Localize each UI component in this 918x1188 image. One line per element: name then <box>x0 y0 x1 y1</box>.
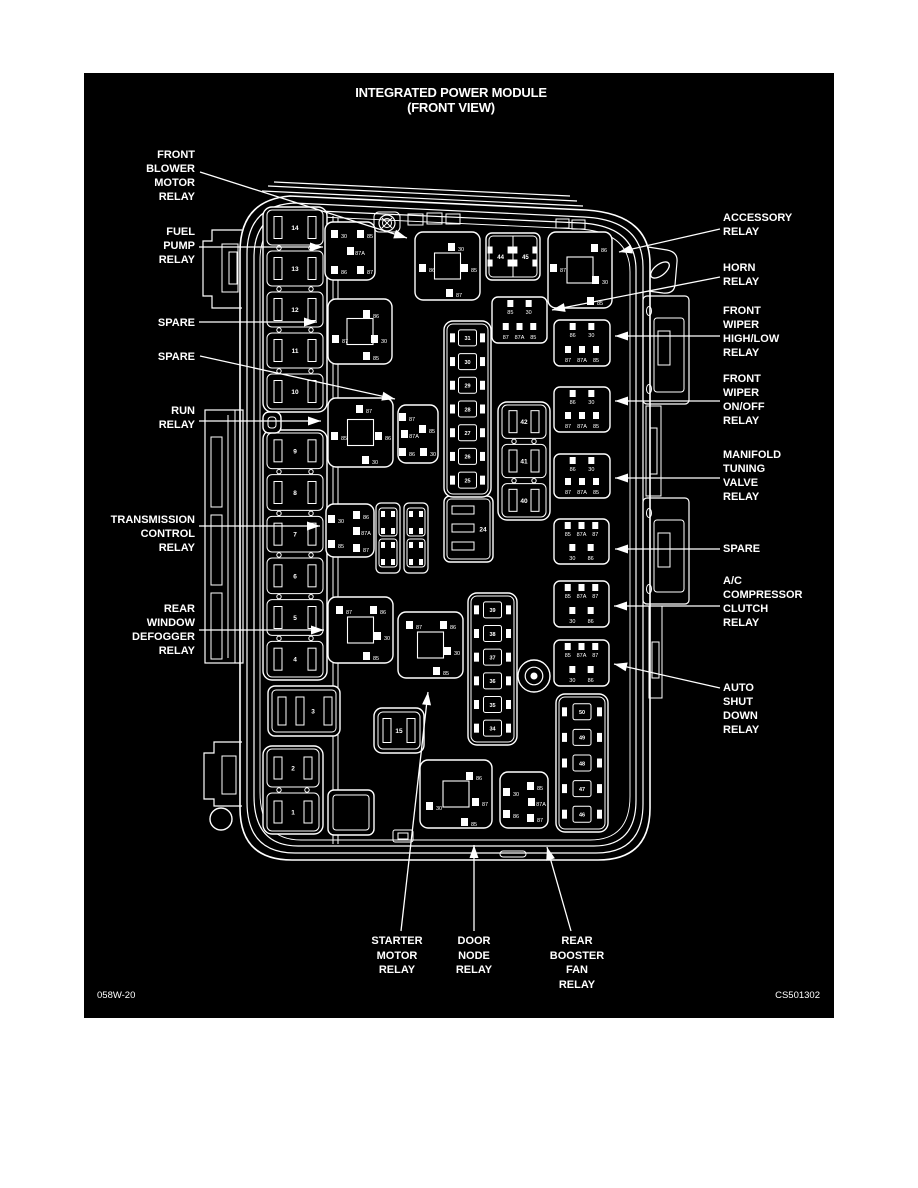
pin-label: 85 <box>597 301 603 307</box>
pin-label: 87A <box>577 424 587 430</box>
pin-stub <box>588 544 594 551</box>
pin-stub <box>461 264 468 272</box>
fuse-number: 9 <box>293 448 297 455</box>
pin-stub <box>569 544 575 551</box>
pin-stub <box>474 605 479 614</box>
pin-stub <box>488 247 493 254</box>
spare-right-label: SPARE <box>723 543 760 555</box>
pin-stub <box>562 759 567 768</box>
pin-label: 85 <box>565 594 571 600</box>
pin-stub <box>353 544 360 552</box>
pin-stub <box>401 430 408 438</box>
callout-text: TUNING <box>723 463 765 475</box>
pin-stub <box>381 542 385 548</box>
pin-stub <box>532 247 537 254</box>
pin-stub <box>588 666 594 673</box>
spare-2-label: SPARE <box>158 351 195 363</box>
fuse-number: 26 <box>464 455 470 461</box>
pin-stub <box>363 352 370 360</box>
spare-1-label: SPARE <box>158 317 195 329</box>
callout-text: COMPRESSOR <box>723 589 803 601</box>
pin-label: 30 <box>384 636 390 642</box>
pin-label: 87 <box>456 293 462 299</box>
pin-label: 87A <box>515 335 525 341</box>
pin-label: 87 <box>592 532 598 538</box>
pin-label: 30 <box>588 333 594 339</box>
pin-stub <box>579 346 585 353</box>
pin-stub <box>588 457 594 464</box>
pin-label: 87A <box>577 532 587 538</box>
figure-code-left: 058W-20 <box>97 990 135 1001</box>
pin-stub <box>562 810 567 819</box>
pin-stub <box>592 276 599 284</box>
pin-stub <box>591 244 598 252</box>
pin-stub <box>391 511 395 517</box>
manifold-relay-group: 86308787A85 <box>554 454 610 498</box>
blank-box-group <box>328 790 374 835</box>
ac-clutch-relay-group: 8587A873086 <box>554 581 609 627</box>
pin-stub <box>450 333 455 342</box>
diagram-subtitle: (FRONT VIEW) <box>407 100 495 115</box>
fuse-number: 4 <box>293 657 297 664</box>
pin-stub <box>450 357 455 366</box>
pin-stub <box>419 542 423 548</box>
pin-label: 30 <box>341 234 347 240</box>
minifuse-column-right-group: 5049484746 <box>556 694 608 832</box>
callout-text: FRONT <box>157 149 195 161</box>
callout-text: BOOSTER <box>550 950 604 962</box>
pin-stub <box>399 413 406 421</box>
callout-text: FUEL <box>166 226 195 238</box>
fuse-number: 34 <box>489 726 496 732</box>
minifuse-strip-2 <box>404 503 428 573</box>
callout-text: ACCESSORY <box>723 212 793 224</box>
pin-label: 30 <box>569 619 575 625</box>
pin-stub <box>419 264 426 272</box>
pin-stub <box>488 260 493 267</box>
pin-label: 30 <box>526 310 532 316</box>
pin-stub <box>446 289 453 297</box>
pin-label: 85 <box>530 335 536 341</box>
callout-text: WINDOW <box>147 617 196 629</box>
pin-stub <box>450 381 455 390</box>
pin-stub <box>506 724 511 733</box>
callout-text: DEFOGGER <box>132 631 195 643</box>
pin-stub <box>565 412 571 419</box>
pin-label: 85 <box>507 310 513 316</box>
pin-label: 85 <box>471 268 477 274</box>
fuse-number: 25 <box>464 478 470 484</box>
run-feed-box <box>263 412 281 433</box>
pin-label: 87A <box>409 434 419 440</box>
callout-text: RELAY <box>723 226 760 238</box>
fuse-column-42-group: 424140 <box>498 402 550 520</box>
pin-label: 86 <box>363 515 369 521</box>
pin-stub <box>391 528 395 534</box>
pin-label: 87A <box>577 490 587 496</box>
pin-label: 86 <box>385 436 391 442</box>
callout-text: MOTOR <box>377 950 418 962</box>
pin-stub <box>528 798 535 806</box>
callout-text: FRONT <box>723 373 761 385</box>
pin-stub <box>480 428 485 437</box>
fuse-number: 2 <box>291 766 295 773</box>
pin-label: 87 <box>503 335 509 341</box>
pin-label: 30 <box>454 651 460 657</box>
pin-stub <box>562 784 567 793</box>
callout-text: HIGH/LOW <box>723 333 780 345</box>
pin-stub <box>381 528 385 534</box>
pin-stub <box>472 798 479 806</box>
pin-label: 85 <box>593 490 599 496</box>
pin-stub <box>353 511 360 519</box>
fuse-number: 24 <box>479 527 487 534</box>
pin-stub <box>328 515 335 523</box>
callout-text: FRONT <box>723 305 761 317</box>
booster-relay-group: 30868587A87 <box>500 772 548 828</box>
pin-label: 86 <box>588 678 594 684</box>
pin-stub <box>474 676 479 685</box>
callout-text: RELAY <box>159 542 196 554</box>
fuse-number: 7 <box>293 532 297 539</box>
pin-label: 86 <box>588 556 594 562</box>
starter-motor-relay-label: STARTERMOTORRELAY <box>371 935 422 976</box>
stud-group <box>518 660 550 692</box>
pin-stub <box>593 412 599 419</box>
pin-stub <box>391 542 395 548</box>
pin-label: 87A <box>355 251 365 257</box>
callout-text: NODE <box>458 950 490 962</box>
pin-stub <box>450 452 455 461</box>
spare-relay-1 <box>328 299 392 364</box>
horn-relay-group: 85308787A85 <box>492 297 547 343</box>
spare-relay-2-group: 878587A8630 <box>398 405 438 463</box>
pin-stub <box>332 335 339 343</box>
callout-text: PUMP <box>163 240 195 252</box>
callout-text: SHUT <box>723 696 753 708</box>
pin-stub <box>370 606 377 614</box>
pin-stub <box>565 584 571 591</box>
fuse-column-mid-group: 987654 <box>263 430 327 680</box>
pin-label: 87 <box>342 339 348 345</box>
pin-stub <box>440 621 447 629</box>
callout-text: VALVE <box>723 477 758 489</box>
pin-label: 86 <box>373 314 379 320</box>
pin-label: 85 <box>537 786 543 792</box>
callout-text: FAN <box>566 964 588 976</box>
pin-stub <box>419 511 423 517</box>
pin-stub <box>530 323 536 330</box>
pin-label: 30 <box>569 556 575 562</box>
pin-stub <box>597 733 602 742</box>
pin-stub <box>508 260 513 267</box>
pin-label: 87 <box>592 594 598 600</box>
pin-stub <box>419 528 423 534</box>
fuse-44-45-group: 4445 <box>486 233 540 280</box>
fuse-number: 5 <box>293 615 297 622</box>
pin-label: 85 <box>593 424 599 430</box>
pin-label: 87 <box>363 548 369 554</box>
pin-stub <box>587 297 594 305</box>
pin-label: 30 <box>588 467 594 473</box>
pin-stub <box>461 818 468 826</box>
pin-stub <box>517 323 523 330</box>
pin-stub <box>480 452 485 461</box>
asd-relay-group: 8587A873086 <box>554 640 609 686</box>
pin-stub <box>399 448 406 456</box>
callout-text: CLUTCH <box>723 603 768 615</box>
pin-label: 30 <box>372 460 378 466</box>
fuse-number: 29 <box>464 384 470 390</box>
figure-code-right: CS501302 <box>775 990 820 1001</box>
fuse-number: 38 <box>489 632 495 638</box>
pin-stub <box>593 478 599 485</box>
callout-text: AUTO <box>723 682 754 694</box>
pin-label: 86 <box>429 268 435 274</box>
pin-stub <box>593 346 599 353</box>
minifuse-column-center <box>468 593 517 745</box>
callout-text: WIPER <box>723 387 759 399</box>
pin-label: 87 <box>346 610 352 616</box>
pin-stub <box>588 390 594 397</box>
pin-stub <box>433 667 440 675</box>
diagram-title: INTEGRATED POWER MODULE <box>355 85 547 100</box>
pin-stub <box>507 300 513 307</box>
pin-label: 86 <box>513 814 519 820</box>
pin-stub <box>565 522 571 529</box>
callout-text: A/C <box>723 575 742 587</box>
pin-label: 87A <box>361 531 371 537</box>
pin-label: 85 <box>565 653 571 659</box>
minifuse-strip-1 <box>376 503 400 573</box>
pin-label: 87 <box>565 424 571 430</box>
callout-text: RELAY <box>723 276 760 288</box>
pin-stub <box>565 478 571 485</box>
pin-stub <box>363 652 370 660</box>
pin-stub <box>328 540 335 548</box>
pin-stub <box>474 724 479 733</box>
stud-center <box>530 672 537 679</box>
pin-stub <box>597 759 602 768</box>
pin-stub <box>480 333 485 342</box>
pin-stub <box>347 247 354 255</box>
wiper-highlow-relay-group: 86308787A85 <box>554 320 610 366</box>
fuse-number: 11 <box>292 348 299 355</box>
minifuse-strip-1-group <box>376 503 400 573</box>
pin-label: 85 <box>593 358 599 364</box>
minifuse-column-upper-group: 31302928272625 <box>444 321 491 497</box>
pin-stub <box>480 476 485 485</box>
pin-stub <box>550 264 557 272</box>
pin-stub <box>597 784 602 793</box>
pin-stub <box>356 405 363 413</box>
run-relay-group: 87858630 <box>328 398 393 467</box>
pin-stub <box>570 457 576 464</box>
callout-text: CONTROL <box>141 528 196 540</box>
pin-stub <box>565 643 571 650</box>
pin-label: 87 <box>565 490 571 496</box>
tcm-relay-group: 308687A8587 <box>326 504 374 557</box>
callout-text: RELAY <box>159 645 196 657</box>
callout-text: MANIFOLD <box>723 449 781 461</box>
callout-text: BLOWER <box>146 163 195 175</box>
pin-stub <box>375 432 382 440</box>
fuse-number: 47 <box>579 787 585 793</box>
pin-stub <box>474 629 479 638</box>
fuse-number: 10 <box>291 389 299 396</box>
pin-stub <box>474 653 479 662</box>
pin-label: 85 <box>338 544 344 550</box>
fuse-number: 39 <box>489 608 495 614</box>
pin-stub <box>562 707 567 716</box>
pin-stub <box>480 357 485 366</box>
pin-label: 85 <box>429 429 435 435</box>
pin-label: 87 <box>560 268 566 274</box>
pin-label: 30 <box>436 806 442 812</box>
pin-stub <box>420 448 427 456</box>
pin-stub <box>527 814 534 822</box>
pin-stub <box>569 666 575 673</box>
fuse-number: 14 <box>291 225 299 232</box>
pin-stub <box>391 559 395 565</box>
pin-label: 87 <box>592 653 598 659</box>
pin-stub <box>503 788 510 796</box>
fuse-number: 30 <box>464 360 470 366</box>
pin-label: 85 <box>471 822 477 828</box>
pin-stub <box>579 478 585 485</box>
callout-text: DOOR <box>458 935 491 947</box>
pin-stub <box>419 425 426 433</box>
pin-stub <box>331 432 338 440</box>
pin-stub <box>409 542 413 548</box>
pin-stub <box>527 782 534 790</box>
callout-text: RELAY <box>159 254 196 266</box>
fuse-number: 31 <box>464 336 470 342</box>
fuse-number: 27 <box>464 431 470 437</box>
callout-text: SPARE <box>158 317 195 329</box>
accessory-relay <box>548 232 612 308</box>
pin-stub <box>592 522 598 529</box>
pin-label: 87 <box>366 409 372 415</box>
fuse-number: 46 <box>579 813 585 819</box>
fuse-number: 44 <box>497 255 504 261</box>
pin-stub <box>336 606 343 614</box>
pin-stub <box>450 476 455 485</box>
page: INTEGRATED POWER MODULE (FRONT VIEW) <box>0 0 918 1188</box>
pin-stub <box>526 300 532 307</box>
fuse-15-group: 15 <box>374 708 424 753</box>
callout-text: RELAY <box>379 964 416 976</box>
pin-stub <box>381 559 385 565</box>
pin-stub <box>474 700 479 709</box>
callout-text: RELAY <box>159 419 196 431</box>
pin-label: 85 <box>373 356 379 362</box>
pin-label: 87A <box>577 653 587 659</box>
pin-stub <box>331 230 338 238</box>
pin-label: 86 <box>570 333 576 339</box>
pin-stub <box>480 405 485 414</box>
pin-label: 85 <box>367 234 373 240</box>
fuse-24-group: 24 <box>444 496 493 562</box>
pin-label: 86 <box>476 776 482 782</box>
pin-label: 87 <box>367 270 373 276</box>
pin-stub <box>512 260 517 267</box>
fuse-number: 40 <box>520 498 528 505</box>
fuse-number: 13 <box>291 266 299 273</box>
pin-label: 87A <box>577 594 587 600</box>
fuse-number: 36 <box>489 679 495 685</box>
fuse-box-3-group: 3 <box>268 686 340 736</box>
pin-stub <box>532 260 537 267</box>
fuse-number: 37 <box>489 655 495 661</box>
fuse-number: 50 <box>579 710 585 716</box>
pin-stub <box>503 810 510 818</box>
callout-text: RELAY <box>723 724 760 736</box>
callout-text: MOTOR <box>154 177 195 189</box>
pin-stub <box>562 733 567 742</box>
fuse-number: 15 <box>395 728 403 735</box>
pin-stub <box>409 511 413 517</box>
callout-text: WIPER <box>723 319 759 331</box>
pin-stub <box>588 323 594 330</box>
pin-stub <box>374 632 381 640</box>
pin-stub <box>371 335 378 343</box>
fuse-column-low <box>263 746 323 834</box>
minifuse-column-center-group: 393837363534 <box>468 593 517 745</box>
pin-label: 85 <box>443 671 449 677</box>
starter-relay-group: 87863085 <box>398 612 463 678</box>
wiper-onoff-relay-group: 86308787A85 <box>554 387 610 432</box>
fuse-column-low-group: 21 <box>263 746 323 834</box>
pin-label: 86 <box>409 452 415 458</box>
pin-stub <box>506 629 511 638</box>
fuse-number: 41 <box>520 459 528 466</box>
pin-label: 87 <box>482 802 488 808</box>
callout-text: SPARE <box>158 351 195 363</box>
pin-stub <box>569 607 575 614</box>
pin-stub <box>426 802 433 810</box>
pin-stub <box>579 522 585 529</box>
door-node-relay <box>420 760 492 828</box>
callout-text: SPARE <box>723 543 760 555</box>
run-feed-box-group <box>263 412 281 433</box>
fuse-number: 12 <box>291 307 299 314</box>
pin-label: 86 <box>570 467 576 473</box>
pin-label: 87 <box>409 417 415 423</box>
pin-stub <box>579 643 585 650</box>
fuse-number: 48 <box>579 761 585 767</box>
pin-label: 30 <box>458 247 464 253</box>
fuse-number: 8 <box>293 490 297 497</box>
pin-stub <box>565 346 571 353</box>
pin-stub <box>503 323 509 330</box>
pin-stub <box>409 559 413 565</box>
pin-stub <box>592 584 598 591</box>
pin-stub <box>419 559 423 565</box>
callout-text: REAR <box>164 603 195 615</box>
pin-stub <box>597 707 602 716</box>
pin-stub <box>597 810 602 819</box>
pin-label: 85 <box>565 532 571 538</box>
pin-label: 30 <box>338 519 344 525</box>
pin-stub <box>450 428 455 437</box>
callout-text: RELAY <box>723 491 760 503</box>
defogger-relay-group: 87863085 <box>328 597 393 663</box>
callout-text: ON/OFF <box>723 401 765 413</box>
callout-text: STARTER <box>371 935 422 947</box>
fuel-pump-relay-group: 308587A8687 <box>325 222 375 280</box>
pin-label: 30 <box>430 452 436 458</box>
